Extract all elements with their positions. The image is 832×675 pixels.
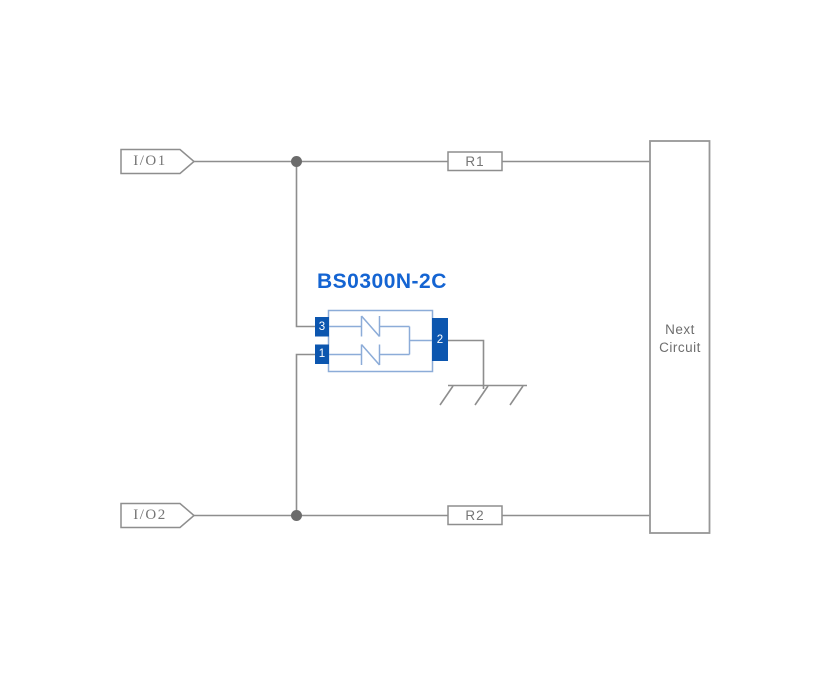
next-circuit-label: Next Circuit: [650, 321, 710, 356]
resistor-r2-label: R2: [448, 506, 502, 524]
pin1-label: 1: [315, 344, 329, 364]
schematic-canvas: I/O1 I/O2 R1 R2 Next Circuit BS0300N-2C …: [0, 0, 832, 675]
component-title: BS0300N-2C: [317, 270, 447, 294]
pin3-label: 3: [315, 317, 329, 336]
pin2-to-ground-wire: [448, 341, 484, 390]
io1-label: I/O1: [121, 150, 179, 173]
io2-label: I/O2: [121, 504, 179, 527]
junction-dot-top: [291, 156, 302, 167]
junction-dot-bottom: [291, 510, 302, 521]
pin2-label: 2: [432, 318, 448, 361]
next-circuit-label-line2: Circuit: [650, 339, 710, 357]
io1-to-pin3-wire: [297, 162, 317, 327]
resistor-r1-label: R1: [448, 152, 502, 170]
io2-to-pin1-wire: [297, 355, 317, 516]
next-circuit-label-line1: Next: [650, 321, 710, 339]
